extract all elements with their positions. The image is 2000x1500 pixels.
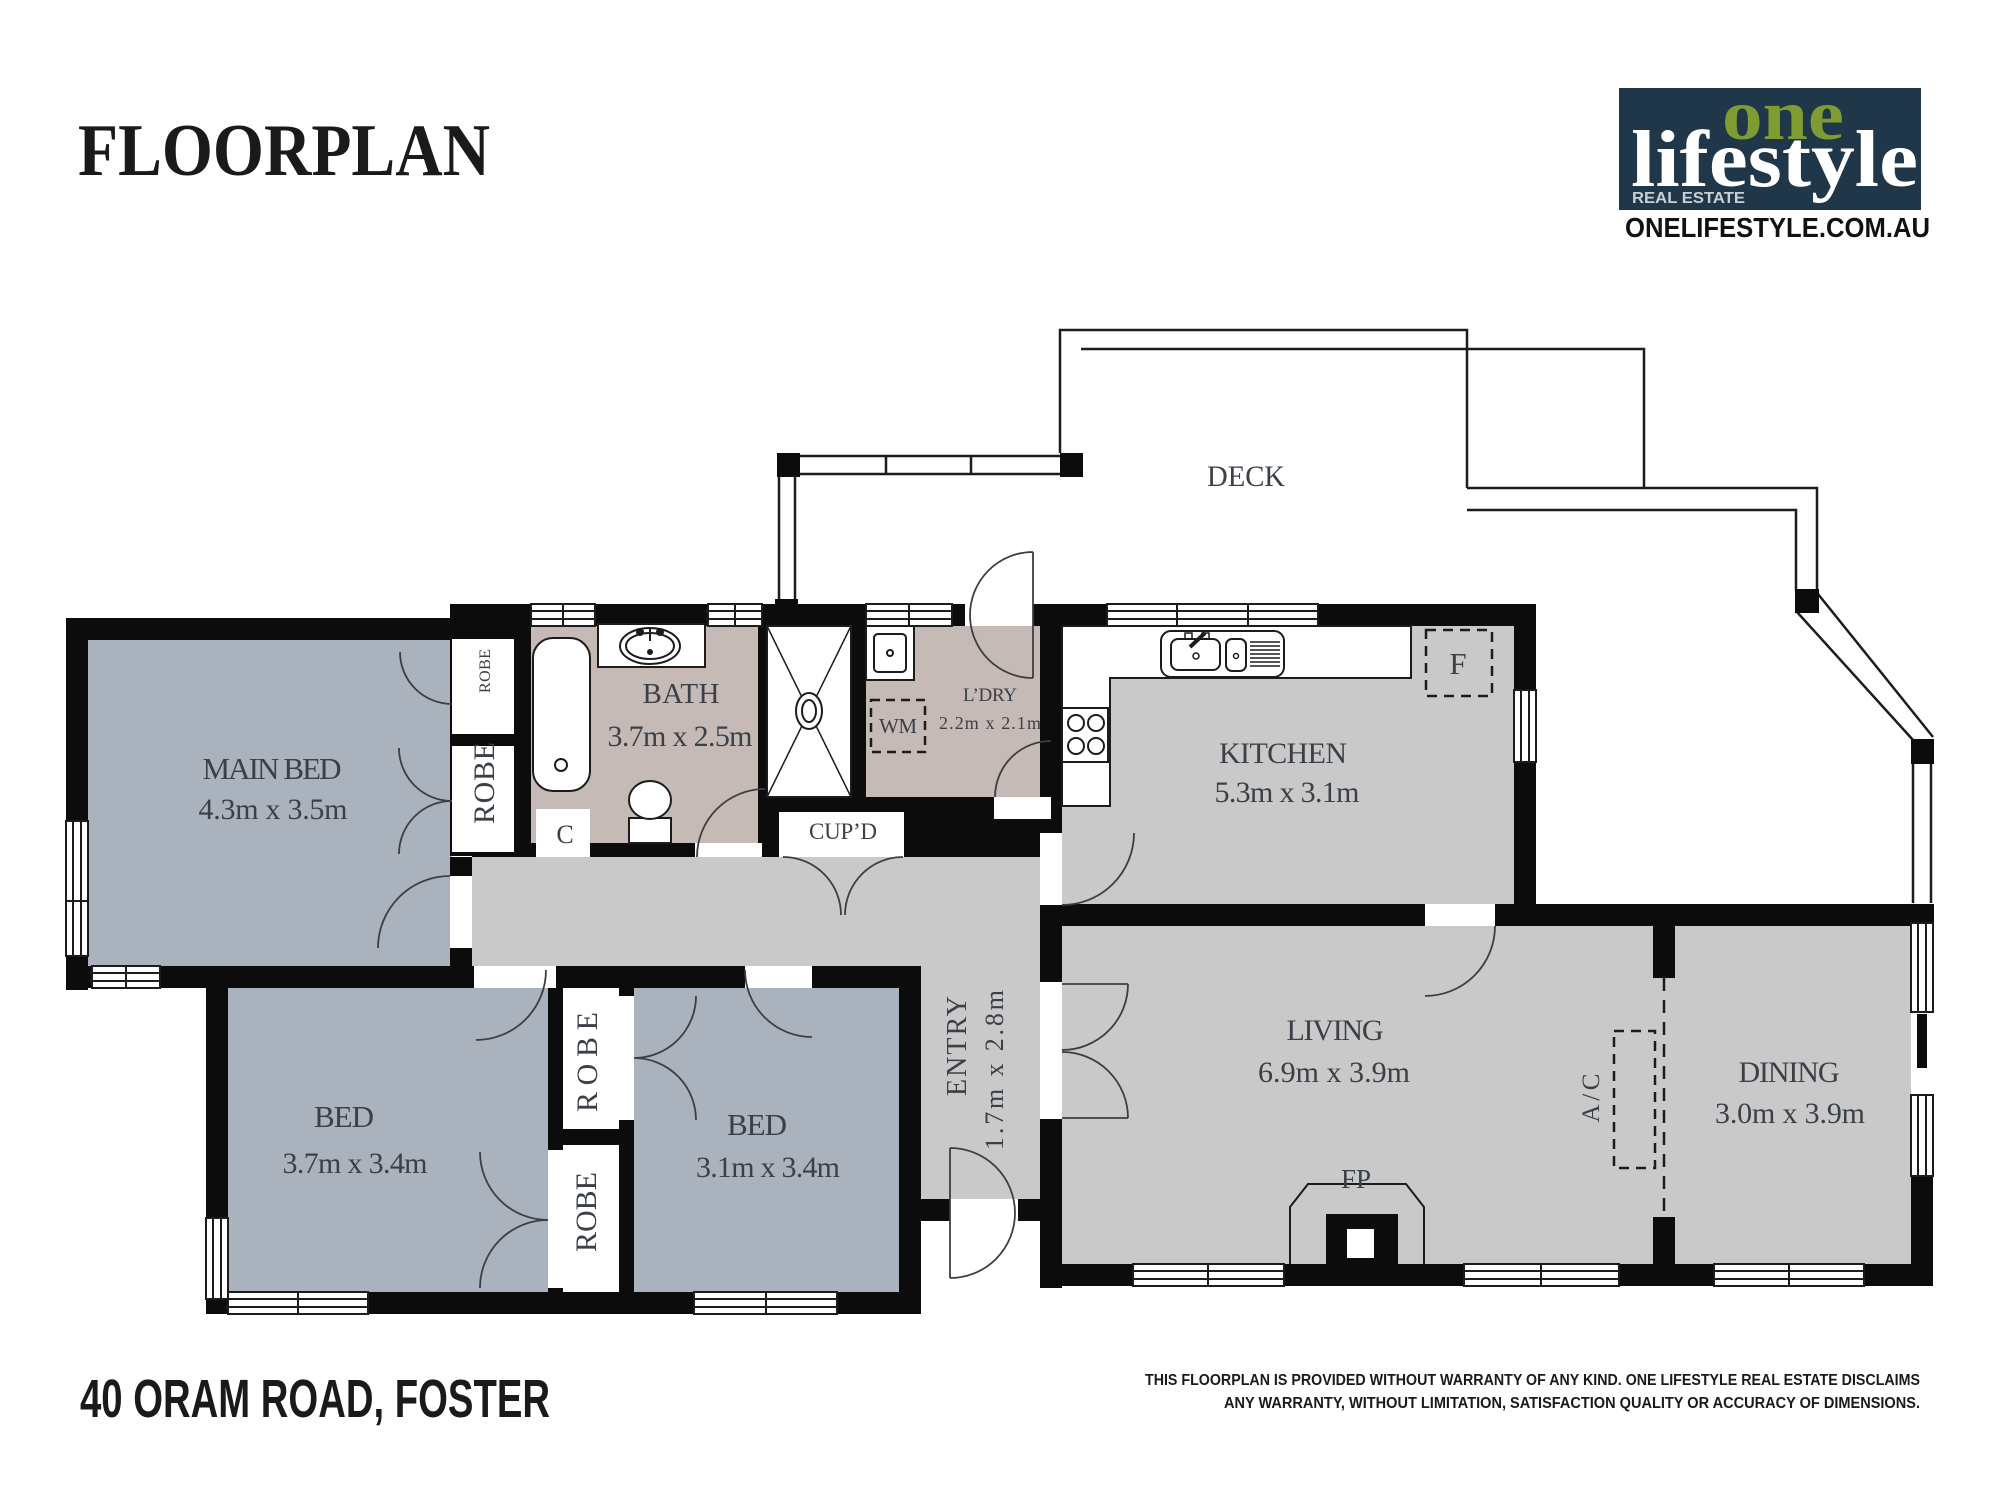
svg-text:ROBE: ROBE [468, 742, 501, 824]
svg-text:BED: BED [727, 1107, 787, 1142]
svg-text:ONELIFESTYLE.COM.AU: ONELIFESTYLE.COM.AU [1625, 212, 1930, 243]
svg-text:CUP’D: CUP’D [809, 819, 877, 844]
svg-text:ROBE: ROBE [477, 649, 494, 693]
svg-text:2.2m x 2.1m: 2.2m x 2.1m [939, 713, 1041, 733]
svg-text:3.7m x 3.4m: 3.7m x 3.4m [283, 1147, 428, 1180]
svg-text:3.1m x 3.4m: 3.1m x 3.4m [696, 1151, 840, 1184]
svg-text:FP: FP [1341, 1164, 1371, 1194]
svg-text:3.7m x 2.5m: 3.7m x 2.5m [608, 720, 753, 753]
svg-text:5.3m x 3.1m: 5.3m x 3.1m [1215, 776, 1360, 809]
svg-text:DINING: DINING [1739, 1056, 1840, 1089]
svg-text:3.0m x 3.9m: 3.0m x 3.9m [1715, 1097, 1865, 1130]
svg-text:BED: BED [314, 1099, 374, 1134]
svg-text:ENTRY: ENTRY [942, 996, 973, 1096]
svg-text:ROBE: ROBE [570, 1172, 603, 1252]
svg-text:A/C: A/C [1578, 1074, 1605, 1123]
svg-text:REAL ESTATE: REAL ESTATE [1632, 190, 1745, 207]
svg-text:4.3m x 3.5m: 4.3m x 3.5m [199, 793, 348, 826]
svg-text:LIVING: LIVING [1287, 1014, 1384, 1047]
svg-text:L’DRY: L’DRY [963, 685, 1017, 706]
svg-text:THIS FLOORPLAN IS PROVIDED WIT: THIS FLOORPLAN IS PROVIDED WITHOUT WARRA… [1145, 1372, 1920, 1389]
svg-text:C: C [556, 820, 573, 849]
svg-text:BATH: BATH [643, 678, 720, 710]
svg-text:6.9m x 3.9m: 6.9m x 3.9m [1258, 1056, 1410, 1089]
svg-text:FLOORPLAN: FLOORPLAN [78, 110, 490, 192]
svg-text:DECK: DECK [1207, 460, 1285, 493]
svg-text:F: F [1449, 646, 1466, 681]
svg-text:MAIN BED: MAIN BED [203, 751, 342, 786]
svg-text:KITCHEN: KITCHEN [1219, 737, 1347, 770]
svg-text:ANY WARRANTY, WITHOUT LIMITATI: ANY WARRANTY, WITHOUT LIMITATION, SATISF… [1224, 1395, 1920, 1412]
svg-text:WM: WM [879, 714, 917, 738]
svg-text:40 ORAM ROAD, FOSTER: 40 ORAM ROAD, FOSTER [80, 1369, 550, 1429]
